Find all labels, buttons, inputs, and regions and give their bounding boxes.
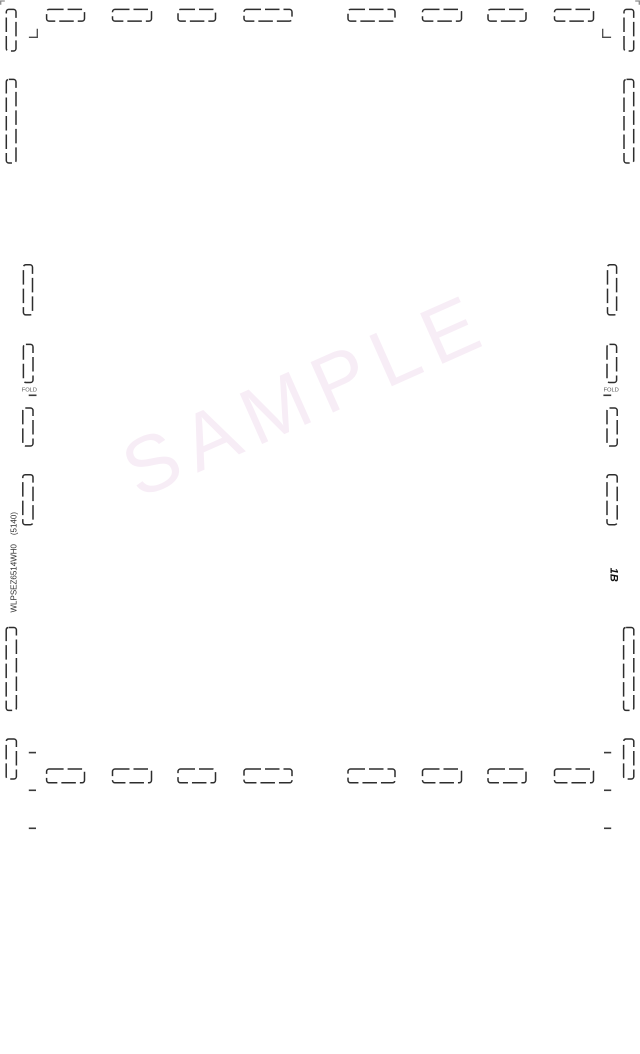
svg-text:FOLD: FOLD xyxy=(604,388,619,394)
svg-text:WLPSEZ6514WH0 (5140): WLPSEZ6514WH0 (5140) xyxy=(9,512,18,613)
svg-text:1B: 1B xyxy=(608,568,620,582)
svg-text:FOLD: FOLD xyxy=(22,388,37,394)
